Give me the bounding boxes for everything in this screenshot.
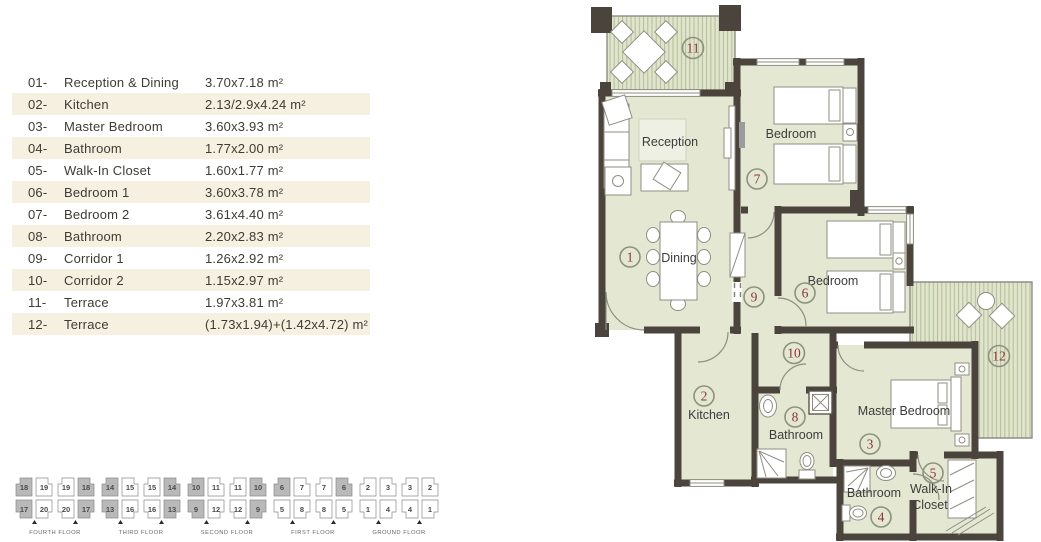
svg-text:7: 7 [754, 172, 761, 187]
walkin-label-2: Closet [912, 498, 948, 512]
reception-label: Reception [642, 135, 698, 149]
svg-text:9: 9 [751, 290, 758, 305]
walkin-label-1: Walk-In [910, 482, 952, 496]
svg-text:6: 6 [802, 286, 809, 301]
wardrobe-panel [739, 122, 745, 148]
svg-text:1: 1 [627, 250, 634, 265]
svg-text:12: 12 [992, 349, 1006, 364]
svg-text:10: 10 [787, 346, 801, 361]
svg-text:4: 4 [878, 510, 885, 525]
kitchen-area [678, 330, 755, 483]
svg-text:8: 8 [792, 410, 799, 425]
toilet-tank [799, 470, 815, 479]
tv [724, 128, 731, 158]
bathroom-4-label: Bathroom [847, 486, 901, 500]
dashed-opening [732, 282, 742, 302]
master-bedroom-label: Master Bedroom [858, 404, 950, 418]
kitchen-label: Kitchen [688, 408, 730, 422]
toilet-tank [842, 505, 850, 521]
svg-text:11: 11 [687, 41, 700, 56]
svg-text:5: 5 [930, 466, 937, 481]
floor-plan-page: 01-Reception & Dining3.70x7.18 m²02-Kitc… [0, 0, 1041, 542]
apartment-floor-plan: Reception Dining Bedroom Bedroom Kitchen… [0, 0, 1041, 542]
bathroom-8-label: Bathroom [769, 428, 823, 442]
bedroom-6-label: Bedroom [808, 274, 859, 288]
bedroom-7-label: Bedroom [766, 127, 817, 141]
svg-text:3: 3 [867, 437, 874, 452]
svg-text:2: 2 [701, 389, 708, 404]
dining-label: Dining [661, 251, 696, 265]
